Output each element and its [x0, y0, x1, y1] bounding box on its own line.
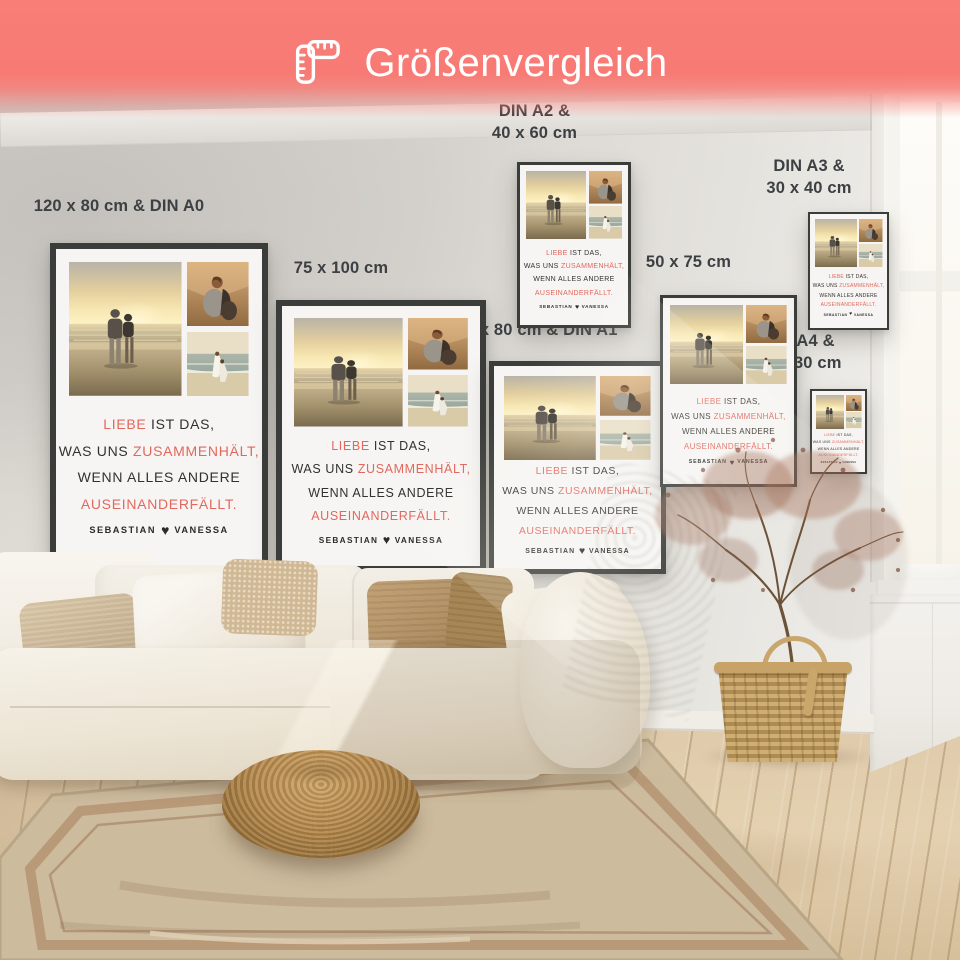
beach-couple-photo: [504, 376, 596, 460]
beach-dancing-photo: [187, 332, 249, 396]
couple-names: SEBASTIAN♥VANESSA: [89, 524, 228, 537]
couple-names: SEBASTIAN♥VANESSA: [824, 313, 874, 318]
heart-icon: ♥: [383, 536, 390, 546]
size-label-50x75: 50 x 75 cm: [620, 252, 757, 274]
beach-dancing-photo: [408, 375, 468, 427]
size-label-din-a0: 120 x 80 cm & DIN A0: [10, 196, 228, 218]
poster-75x100: LIEBE IST DAS, WAS UNS ZUSAMMENHÄLT, WEN…: [276, 300, 486, 572]
beach-couple-photo: [815, 219, 858, 267]
beach-dancing-photo: [746, 346, 787, 384]
photo-collage: [69, 262, 249, 396]
basket-rim: [714, 662, 852, 673]
photo-collage: [294, 318, 468, 427]
poster-din-a2: LIEBE IST DAS, WAS UNS ZUSAMMENHÄLT, WEN…: [517, 162, 631, 328]
heart-icon: ♥: [575, 305, 579, 311]
poster-din-a3: LIEBE IST DAS, WAS UNS ZUSAMMENHÄLT, WEN…: [808, 212, 889, 330]
couple-names: SEBASTIAN♥VANESSA: [319, 535, 443, 547]
beach-dancing-photo: [859, 244, 882, 267]
poster-quote: LIEBE IST DAS, WAS UNS ZUSAMMENHÄLT, WEN…: [294, 427, 468, 554]
heart-icon: ♥: [849, 313, 852, 317]
poster-mat: LIEBE IST DAS, WAS UNS ZUSAMMENHÄLT, WEN…: [56, 249, 262, 566]
beach-couple-photo: [294, 318, 403, 427]
size-comparison-scene: 120 x 80 cm & DIN A0 75 x 100 cm DIN A2 …: [0, 0, 960, 960]
woven-basket: [714, 668, 852, 762]
beach-sitting-photo: [859, 219, 882, 242]
title-banner: Größenvergleich: [0, 0, 960, 118]
poster-quote: LIEBE IST DAS, WAS UNS ZUSAMMENHÄLT, WEN…: [526, 239, 622, 319]
beach-couple-photo: [526, 171, 586, 239]
poster-quote: LIEBE IST DAS, WAS UNS ZUSAMMENHÄLT, WEN…: [69, 396, 249, 553]
poster-mat: LIEBE IST DAS, WAS UNS ZUSAMMENHÄLT, WEN…: [520, 165, 628, 325]
cabinet-door-seam: [932, 604, 933, 754]
beach-sitting-photo: [746, 305, 787, 343]
heart-icon: ♥: [161, 525, 169, 536]
beach-dancing-photo: [589, 206, 622, 239]
photo-collage: [670, 305, 787, 384]
photo-collage: [526, 171, 622, 239]
corner-ruler-icon: [292, 36, 346, 90]
page-title: Größenvergleich: [364, 41, 667, 86]
size-label-din-a3: DIN A3 & 30 x 40 cm: [745, 156, 873, 200]
poster-quote: LIEBE IST DAS, WAS UNS ZUSAMMENHÄLT, WEN…: [815, 267, 883, 324]
beach-couple-photo: [670, 305, 743, 384]
beach-sitting-photo: [589, 171, 622, 204]
poster-din-a0: LIEBE IST DAS, WAS UNS ZUSAMMENHÄLT, WEN…: [50, 243, 268, 572]
poster-mat: LIEBE IST DAS, WAS UNS ZUSAMMENHÄLT, WEN…: [810, 214, 887, 328]
window-sash-vertical: [936, 102, 942, 564]
couple-names: SEBASTIAN♥VANESSA: [539, 304, 609, 311]
rattan-pouf: [222, 750, 420, 858]
heart-icon: ♥: [579, 548, 585, 556]
beach-couple-photo: [69, 262, 182, 396]
poster-mat: LIEBE IST DAS, WAS UNS ZUSAMMENHÄLT, WEN…: [282, 306, 480, 566]
window-sash-horizontal: [900, 272, 960, 290]
beach-sitting-photo: [408, 318, 468, 370]
pillow-dotted: [221, 558, 319, 636]
photo-collage: [815, 219, 883, 267]
beach-sitting-photo: [187, 262, 249, 326]
